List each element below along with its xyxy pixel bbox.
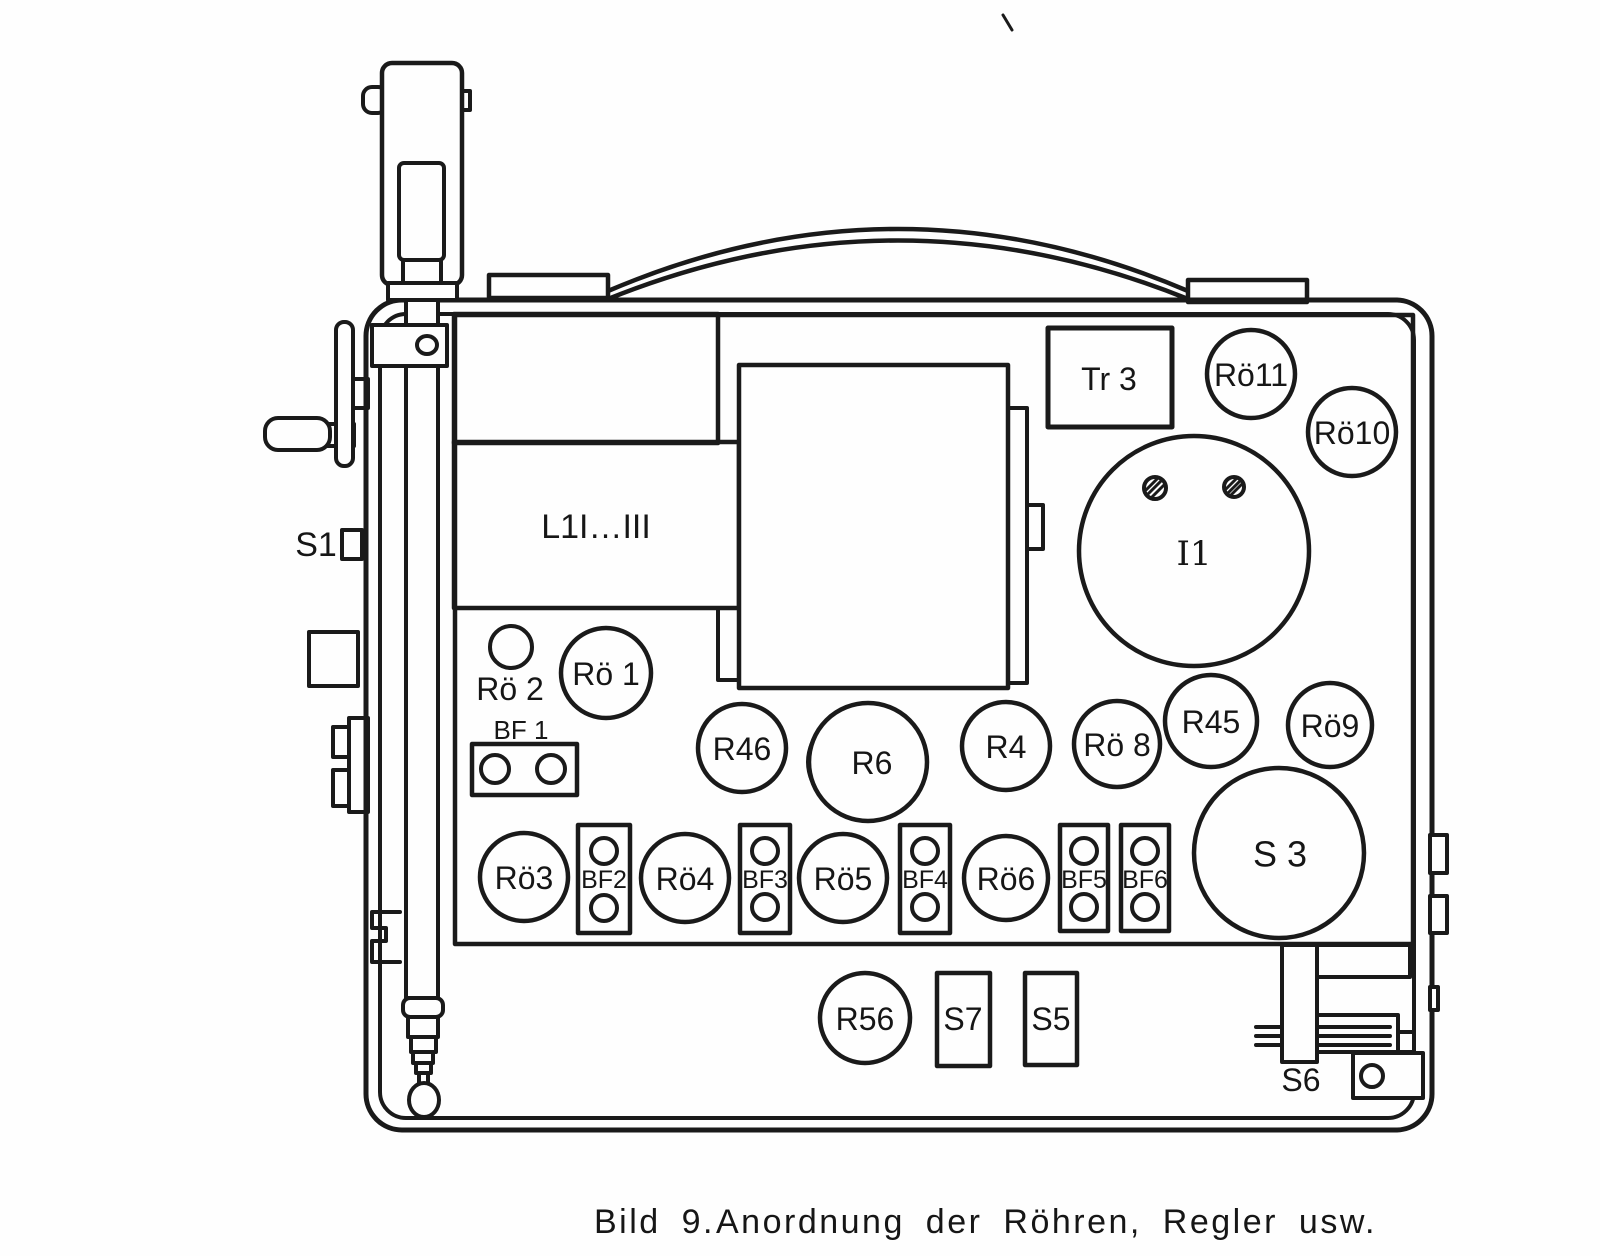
component-bf2: BF2: [578, 825, 630, 933]
right-bump-lower: [1430, 896, 1447, 933]
component-ro1: Rö 1: [561, 628, 651, 718]
bf4-label: BF4: [902, 866, 948, 894]
antenna-rod: [406, 283, 438, 998]
r4-label: R4: [986, 729, 1027, 765]
carry-handle: [489, 229, 1307, 302]
component-s7: S7: [937, 973, 990, 1066]
component-r56: R56: [820, 973, 910, 1063]
component-ro5: Rö5: [799, 834, 887, 922]
component-ro6: Rö6: [964, 836, 1048, 920]
component-r45: R45: [1165, 675, 1257, 767]
component-bf1: BF 1: [472, 715, 577, 795]
bf2-hole-top: [591, 838, 617, 864]
component-r4: R4: [962, 702, 1050, 790]
s6-wires: [1256, 1027, 1390, 1045]
center-block-rear-sliver: [1008, 408, 1027, 683]
component-ro2: Rö 2: [476, 626, 544, 707]
antenna-segment-2: [411, 1037, 436, 1052]
s6-label: S6: [1281, 1062, 1320, 1098]
component-s5: S5: [1025, 973, 1077, 1065]
bf5-hole-top: [1071, 838, 1097, 864]
ro8-label: Rö 8: [1083, 727, 1151, 763]
antenna-segment-1: [408, 1017, 438, 1037]
bf1-hole-right: [537, 755, 565, 783]
component-bf6: BF6: [1121, 825, 1169, 931]
bf5-label: BF5: [1061, 866, 1107, 894]
caption-number: Bild 9.: [594, 1203, 715, 1241]
component-tr3: Tr 3: [1048, 328, 1172, 427]
tr3-label: Tr 3: [1081, 361, 1137, 397]
ro10-label: Rö10: [1314, 415, 1391, 451]
antenna-clip-bar: [336, 322, 353, 466]
antenna-bracket-hole: [417, 336, 437, 354]
antenna-head-inner: [399, 163, 444, 260]
bf4-hole-bottom: [912, 894, 938, 920]
ro11-label: Rö11: [1214, 357, 1288, 393]
coil-and-transformer-blocks: L1I…III: [454, 314, 1043, 688]
bf1-label: BF 1: [494, 715, 549, 745]
right-bump-upper: [1430, 835, 1447, 873]
antenna-base-plate: [388, 283, 457, 300]
ro2-circle: [490, 626, 532, 668]
caption-text: Anordnung der Röhren, Regler usw.: [716, 1203, 1377, 1241]
telescopic-antenna: [372, 283, 457, 1117]
s6-top-bar: [1317, 945, 1410, 977]
figure-caption: Bild 9. Anordnung der Röhren, Regler usw…: [594, 1203, 1377, 1241]
component-bf4: BF4: [900, 825, 950, 933]
case-latch-left: [372, 912, 400, 962]
r46-label: R46: [713, 731, 772, 767]
bf3-hole-bottom: [752, 894, 778, 920]
r45-label: R45: [1182, 704, 1241, 740]
bf6-label: BF6: [1122, 866, 1168, 894]
antenna-top-assembly: [363, 63, 470, 285]
coil-block-step: [718, 608, 739, 680]
i1-label: I1: [1176, 534, 1211, 574]
bf3-label: BF3: [742, 866, 788, 894]
screw-plate-hole: [1361, 1065, 1383, 1087]
component-s3: S 3: [1194, 768, 1364, 938]
tube-layout-diagram: S1 L1I…III Tr 3: [0, 0, 1600, 1256]
ro6-label: Rö6: [977, 861, 1036, 897]
ro1-label: Rö 1: [572, 656, 640, 692]
r56-label: R56: [836, 1001, 895, 1037]
bf2-hole-bottom: [591, 895, 617, 921]
component-s6: S6: [1256, 945, 1423, 1098]
component-ro10: Rö10: [1308, 388, 1396, 476]
component-ro4: Rö4: [641, 834, 729, 922]
scanned-figure-page: S1 L1I…III Tr 3: [0, 0, 1600, 1256]
component-bf5: BF5: [1060, 825, 1108, 931]
component-i1: I1: [1079, 436, 1309, 666]
ro5-label: Rö5: [814, 861, 873, 897]
bf6-hole-bottom: [1132, 894, 1158, 920]
center-block: [739, 365, 1008, 688]
ro3-label: Rö3: [495, 860, 554, 896]
bf1-hole-left: [481, 755, 509, 783]
bf4-hole-top: [912, 838, 938, 864]
ro2-label: Rö 2: [476, 671, 544, 707]
bf2-label: BF2: [581, 866, 627, 894]
component-r6: R6: [808, 703, 927, 821]
s6-vertical-bracket: [1282, 945, 1317, 1062]
s7-label: S7: [943, 1001, 982, 1037]
side-connector-block: [309, 632, 358, 686]
handle-mount-left: [489, 275, 608, 298]
side-bump-upper: [333, 727, 349, 757]
bf6-hole-top: [1132, 838, 1158, 864]
s5-label: S5: [1031, 1001, 1070, 1037]
s3-label: S 3: [1253, 834, 1307, 875]
handle-arc-inner: [608, 241, 1188, 300]
antenna-tip: [409, 1083, 439, 1117]
component-bf3: BF3: [740, 825, 790, 933]
antenna-head-inner-lower: [403, 260, 441, 283]
bf3-hole-top: [752, 838, 778, 864]
side-knob: [265, 418, 330, 450]
ro4-label: Rö4: [656, 861, 715, 897]
antenna-collar: [403, 998, 443, 1017]
s6-panel-stubs: [1398, 1032, 1413, 1052]
r6-label: R6: [852, 745, 893, 781]
ro9-label: Rö9: [1301, 708, 1360, 744]
component-r46: R46: [698, 704, 786, 792]
s1-switch-block: [342, 530, 362, 559]
component-ro8: Rö 8: [1074, 701, 1160, 787]
l1-label: L1I…III: [541, 508, 651, 546]
component-ro11: Rö11: [1207, 330, 1295, 418]
side-bump-lower: [333, 770, 349, 806]
upper-left-block: [454, 314, 718, 443]
scan-artifact-tick: [1003, 15, 1012, 30]
component-ro3: Rö3: [480, 833, 568, 921]
s1-label: S1: [295, 526, 337, 564]
center-block-rear-tab: [1027, 505, 1043, 549]
right-bump-small: [1430, 987, 1438, 1010]
left-side-controls: S1: [265, 322, 368, 812]
bf5-hole-bottom: [1071, 894, 1097, 920]
component-ro9: Rö9: [1288, 683, 1372, 767]
